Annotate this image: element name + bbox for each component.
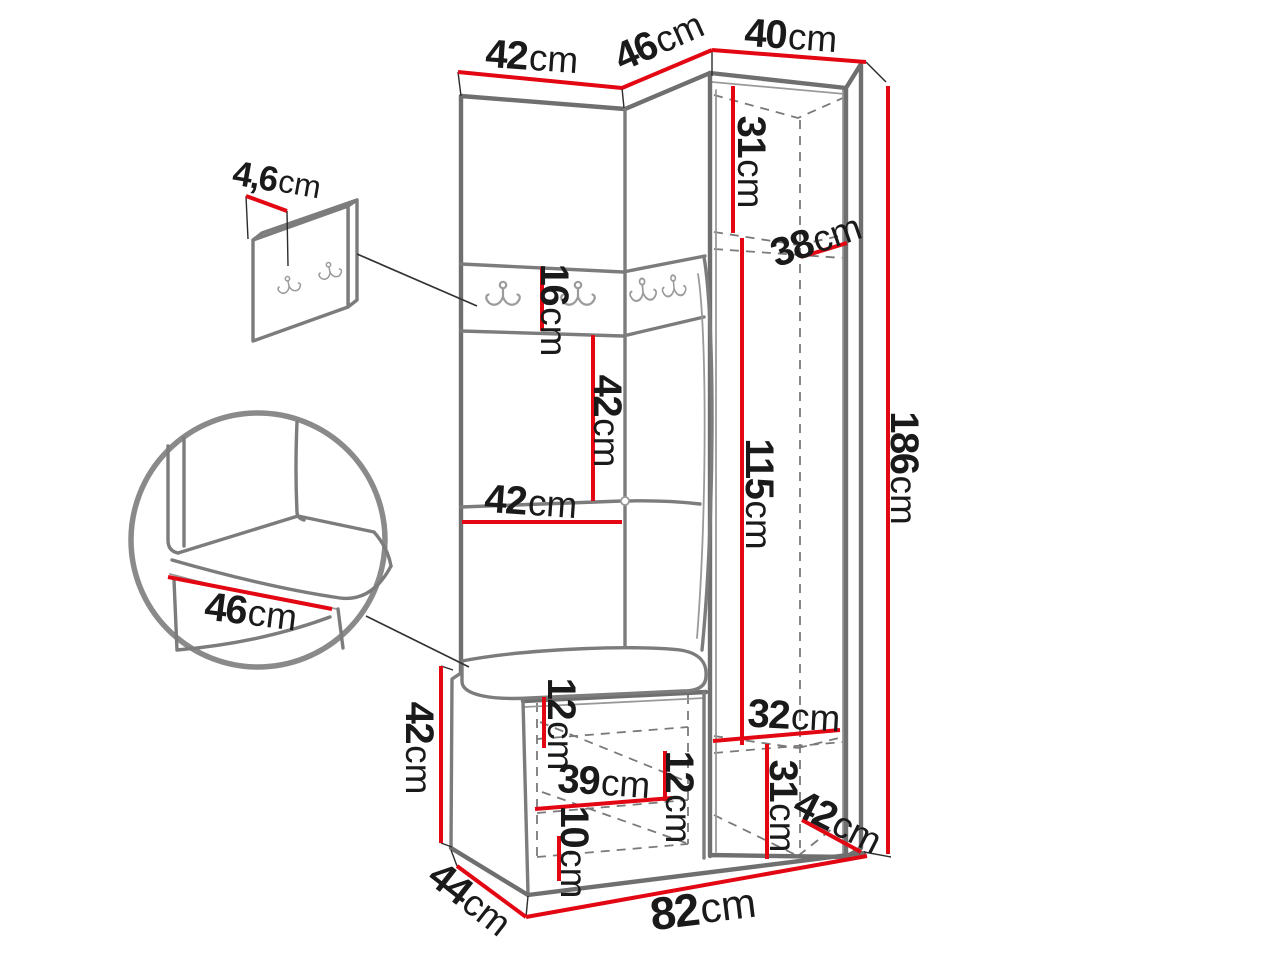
dim-label-hook-rail-height: 16cm — [532, 264, 576, 357]
dim-label-back-panel-width: 42cm — [483, 477, 579, 527]
tufting-button — [621, 497, 629, 505]
dim-label-bench-height: 42cm — [397, 702, 441, 795]
dimension-diagram-page: 42cm 46cm 40cm 31cm 38cm 16cm 42cm 42cm … — [0, 0, 1280, 960]
dim-label-hook-panel-thickness: 4,6cm — [230, 153, 324, 207]
dim-label-cabinet-lower-inner-width: 32cm — [746, 692, 841, 741]
dim-label-bench-inner-width: 39cm — [556, 757, 652, 807]
dim-label-bench-shelf-spacing: 12cm — [657, 751, 701, 844]
dim-label-cabinet-inner-height: 115cm — [737, 438, 781, 549]
cabinet-door — [846, 64, 861, 857]
detail-circle-pointer — [366, 616, 469, 667]
dimension-diagram: 42cm 46cm 40cm 31cm 38cm 16cm 42cm 42cm … — [0, 0, 1280, 960]
dim-label-total-width: 82cm — [647, 876, 759, 941]
seat-cushion — [462, 648, 706, 699]
dim-label-cabinet-width: 40cm — [743, 11, 839, 61]
hook-panel-front — [253, 206, 348, 341]
dim-label-cabinet-upper-inner-height: 31cm — [729, 116, 773, 209]
dim-label-left-section-width: 42cm — [484, 32, 580, 82]
dim-label-total-height: 186cm — [882, 411, 926, 525]
wall-hook-panel — [253, 200, 357, 341]
dim-label-corner-section-width: 46cm — [608, 2, 711, 80]
dim-label-bench-bottom-clearance: 10cm — [552, 806, 596, 899]
dim-label-back-panel-height: 42cm — [585, 375, 629, 468]
